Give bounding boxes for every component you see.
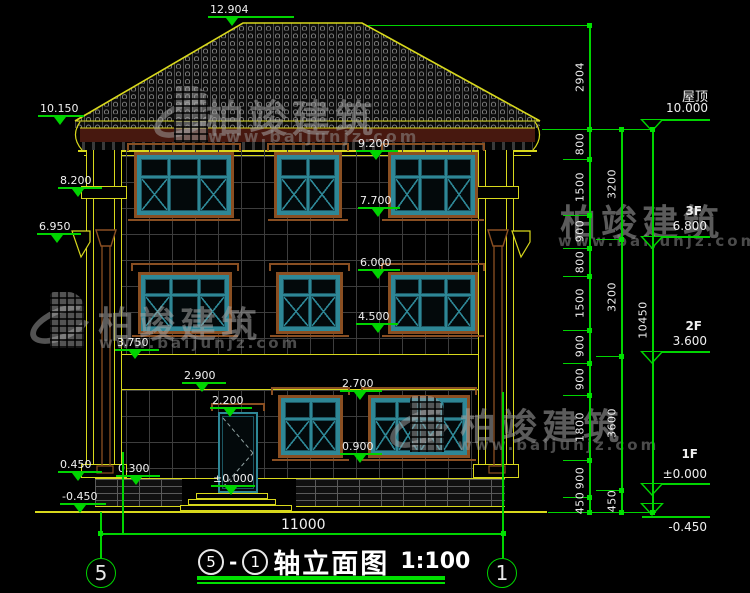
window-pane-x: [447, 178, 471, 211]
dim-value: 3200: [606, 169, 619, 199]
extension-line: [122, 452, 124, 533]
dim-tick: [650, 510, 655, 515]
elevation-label: 7.700: [358, 195, 400, 217]
axis-bubble-1: 1: [487, 558, 517, 588]
extension-line: [548, 512, 656, 513]
extension-line: [563, 159, 589, 160]
dim-value: 900: [574, 335, 587, 358]
elevation-label-door-zero: ±0.000: [211, 473, 255, 495]
window-3f-right: [388, 152, 478, 218]
elevation-value: 6.950: [37, 221, 81, 233]
window-pane: [375, 402, 396, 418]
elevation-value: 10.150: [38, 103, 84, 115]
watermark-url: www.baijunjz.com: [458, 436, 659, 454]
floor-label: 2F: [685, 319, 702, 333]
window-pane: [285, 402, 310, 418]
dim-tick: [587, 213, 592, 218]
dim-tick: [587, 458, 592, 463]
window-sill: [268, 219, 348, 221]
window-hood: [269, 263, 350, 271]
elevation-label: -0.450: [60, 491, 106, 513]
elevation-drawing: 柏竣建筑 www.baijunjz.com 柏竣建筑 www.baijunjz.…: [0, 0, 750, 593]
elevation-label: 3.750: [115, 337, 159, 359]
watermark-logo: [36, 292, 100, 352]
title-bubble-right: 1: [242, 549, 268, 575]
elevation-label-ridge: 12.904: [208, 4, 294, 26]
elevation-value: 9.200: [356, 138, 398, 150]
elevation-label: 2.900: [182, 370, 226, 392]
elevation-label: 9.200: [356, 138, 398, 160]
elevation-marker-icon: [130, 477, 142, 485]
window-pane: [421, 296, 445, 327]
dim-value: 3200: [606, 282, 619, 312]
elevation-label-eave: 10.150: [38, 103, 84, 125]
elevation-value: 6.000: [358, 257, 400, 269]
window-pane: [200, 159, 227, 176]
dim-tick: [587, 393, 592, 398]
dim-tick: [587, 361, 592, 366]
elevation-marker-icon: [54, 117, 66, 125]
elevation-marker-icon: [74, 505, 86, 513]
dim-tick: [619, 127, 624, 132]
dim-tick: [587, 157, 592, 162]
dim-value: 450: [574, 492, 587, 515]
elevation-value: 0.900: [340, 441, 382, 453]
elevation-label: 4.500: [356, 311, 398, 333]
window-pane: [170, 159, 197, 176]
pilaster-right-capital: [473, 186, 519, 199]
elevation-label: 2.700: [340, 378, 382, 400]
watermark-logo-building: [174, 86, 208, 142]
watermark-logo-building: [50, 292, 84, 348]
elevation-marker-icon: [354, 392, 366, 400]
elevation-marker-icon: [370, 152, 382, 160]
dim-value: 800: [574, 251, 587, 274]
axis-bubble-5: 5: [86, 558, 116, 588]
dim-tick: [587, 495, 592, 500]
window-pane: [421, 159, 445, 176]
extension-line: [596, 239, 621, 240]
window-2f-middle: [276, 272, 343, 334]
window-hood: [271, 387, 350, 395]
window-sill: [382, 219, 484, 221]
window-pane-x: [281, 178, 307, 211]
dim-tick: [587, 274, 592, 279]
dim-tick: [587, 23, 592, 28]
window-sill: [128, 219, 240, 221]
elevation-value: ±0.000: [211, 473, 255, 485]
extension-line: [563, 460, 589, 461]
extension-line: [563, 215, 589, 216]
extension-line: [368, 25, 589, 26]
elevation-marker-icon: [51, 235, 63, 243]
window-pane-x: [200, 178, 227, 211]
window-pane: [309, 159, 335, 176]
title-bubble-left: 5: [198, 549, 224, 575]
elevation-value: 2.200: [210, 395, 252, 407]
window-pane: [170, 178, 197, 211]
dim-value: 1500: [574, 172, 587, 202]
elevation-value: 2.700: [340, 378, 382, 390]
extension-line: [542, 129, 652, 130]
extension-line: [596, 356, 621, 357]
window-pane-x: [311, 296, 337, 327]
window-3f-left: [134, 152, 234, 218]
window-pane-x: [312, 420, 337, 451]
floor-elevation: -0.450: [668, 520, 707, 534]
dim-tick: [587, 246, 592, 251]
bottom-dim-line: [100, 533, 503, 535]
window-pane: [281, 159, 307, 176]
elevation-value: 7.700: [358, 195, 400, 207]
elevation-marker-icon: [372, 271, 384, 279]
dim-tick: [587, 328, 592, 333]
floor-label: 3F: [685, 204, 702, 218]
extension-line: [563, 395, 589, 396]
window-pane: [395, 159, 419, 176]
dim-value: 900: [574, 368, 587, 391]
axis-number: 1: [496, 561, 509, 585]
floor-elevation: 10.000: [666, 101, 708, 115]
elevation-value: 2.900: [182, 370, 226, 382]
extension-line: [563, 248, 589, 249]
window-hood: [131, 263, 239, 271]
elevation-label: 2.200: [210, 395, 252, 417]
elevation-marker-icon: [372, 209, 384, 217]
title-scale: 1:100: [400, 549, 470, 574]
elevation-value: -0.450: [60, 491, 106, 503]
title-underline-thin: [197, 582, 445, 584]
dim-value: 1500: [574, 288, 587, 318]
dim-value: 2904: [574, 62, 587, 92]
elevation-marker-icon: [354, 455, 366, 463]
elevation-label: 6.000: [358, 257, 400, 279]
elevation-marker-icon: [72, 473, 84, 481]
window-pane: [141, 159, 168, 176]
window-pane-x: [283, 296, 309, 327]
window-pane: [172, 279, 197, 294]
window-pane: [145, 279, 170, 294]
window-pane: [311, 279, 337, 294]
window-pane: [395, 279, 419, 294]
window-pane: [283, 279, 309, 294]
window-sill: [382, 335, 484, 337]
title-separator: -: [229, 550, 237, 574]
dim-tick: [619, 237, 624, 242]
window-pane: [447, 159, 471, 176]
dim-tick: [619, 488, 624, 493]
elevation-marker-icon: [225, 487, 237, 495]
watermark-logo-building: [410, 396, 444, 452]
bottom-dim-value: 11000: [281, 517, 326, 533]
extension-line: [563, 330, 589, 331]
window-pane: [421, 178, 445, 211]
window-pane-x: [395, 296, 419, 327]
dim-value: 1800: [574, 412, 587, 442]
elevation-marker-icon: [129, 351, 141, 359]
elevation-value: 3.750: [115, 337, 159, 349]
window-3f-middle: [274, 152, 342, 218]
window-pane-x: [309, 178, 335, 211]
dim-value: 3600: [606, 408, 619, 438]
extension-line: [563, 276, 589, 277]
dim-value: 900: [574, 220, 587, 243]
dim-chain-line-3: [652, 129, 654, 512]
window-pane: [421, 279, 445, 294]
dim-tick: [619, 354, 624, 359]
dim-tick: [587, 510, 592, 515]
elevation-value: 12.904: [208, 4, 294, 16]
dim-tick: [587, 127, 592, 132]
elevation-marker-icon: [72, 189, 84, 197]
window-pane-x: [285, 420, 310, 451]
dim-value: 800: [574, 133, 587, 156]
level-line: [642, 516, 710, 518]
elevation-marker-icon: [372, 325, 384, 333]
extension-line: [563, 363, 589, 364]
elevation-marker-icon: [224, 409, 236, 417]
dim-value: 450: [606, 490, 619, 513]
floor-label: 1F: [681, 447, 698, 461]
window-pane-x: [447, 296, 471, 327]
bracket-right: [512, 231, 530, 257]
window-pane-x: [141, 178, 168, 211]
floor-elevation: 6.800: [673, 219, 707, 233]
step-bottom: [180, 505, 292, 511]
elevation-value: 8.200: [58, 175, 102, 187]
window-pane: [200, 279, 225, 294]
watermark-logo: [396, 396, 460, 456]
elevation-label: 0.900: [340, 441, 382, 463]
dim-chain-line-2: [621, 129, 623, 512]
window-2f-right: [388, 272, 478, 334]
title-underline-thick: [197, 576, 445, 580]
elevation-label: 6.950: [37, 221, 81, 243]
elevation-value: 4.500: [356, 311, 398, 323]
pilaster-right-base: [473, 464, 519, 478]
elevation-label: 0.450: [58, 459, 102, 481]
dim-tick: [650, 127, 655, 132]
dim-tick: [501, 531, 506, 536]
window-pane: [447, 279, 471, 294]
window-pane: [312, 402, 337, 418]
axis-number: 5: [95, 561, 108, 585]
floor-band: [100, 354, 500, 390]
dim-value: 10450: [637, 301, 650, 339]
dim-value: 900: [574, 467, 587, 490]
floor-elevation: ±0.000: [663, 467, 707, 481]
elevation-marker-icon: [226, 18, 238, 26]
dim-chain-line-1: [589, 25, 591, 512]
elevation-value: 0.450: [58, 459, 102, 471]
floor-elevation: 3.600: [673, 334, 707, 348]
dim-tick: [619, 510, 624, 515]
window-1f-left: [278, 395, 343, 458]
elevation-marker-icon: [196, 384, 208, 392]
window-sill: [272, 459, 349, 461]
dim-tick: [98, 531, 103, 536]
ground-line: [35, 511, 547, 513]
elevation-label: 8.200: [58, 175, 102, 197]
leader-line: [208, 16, 294, 18]
